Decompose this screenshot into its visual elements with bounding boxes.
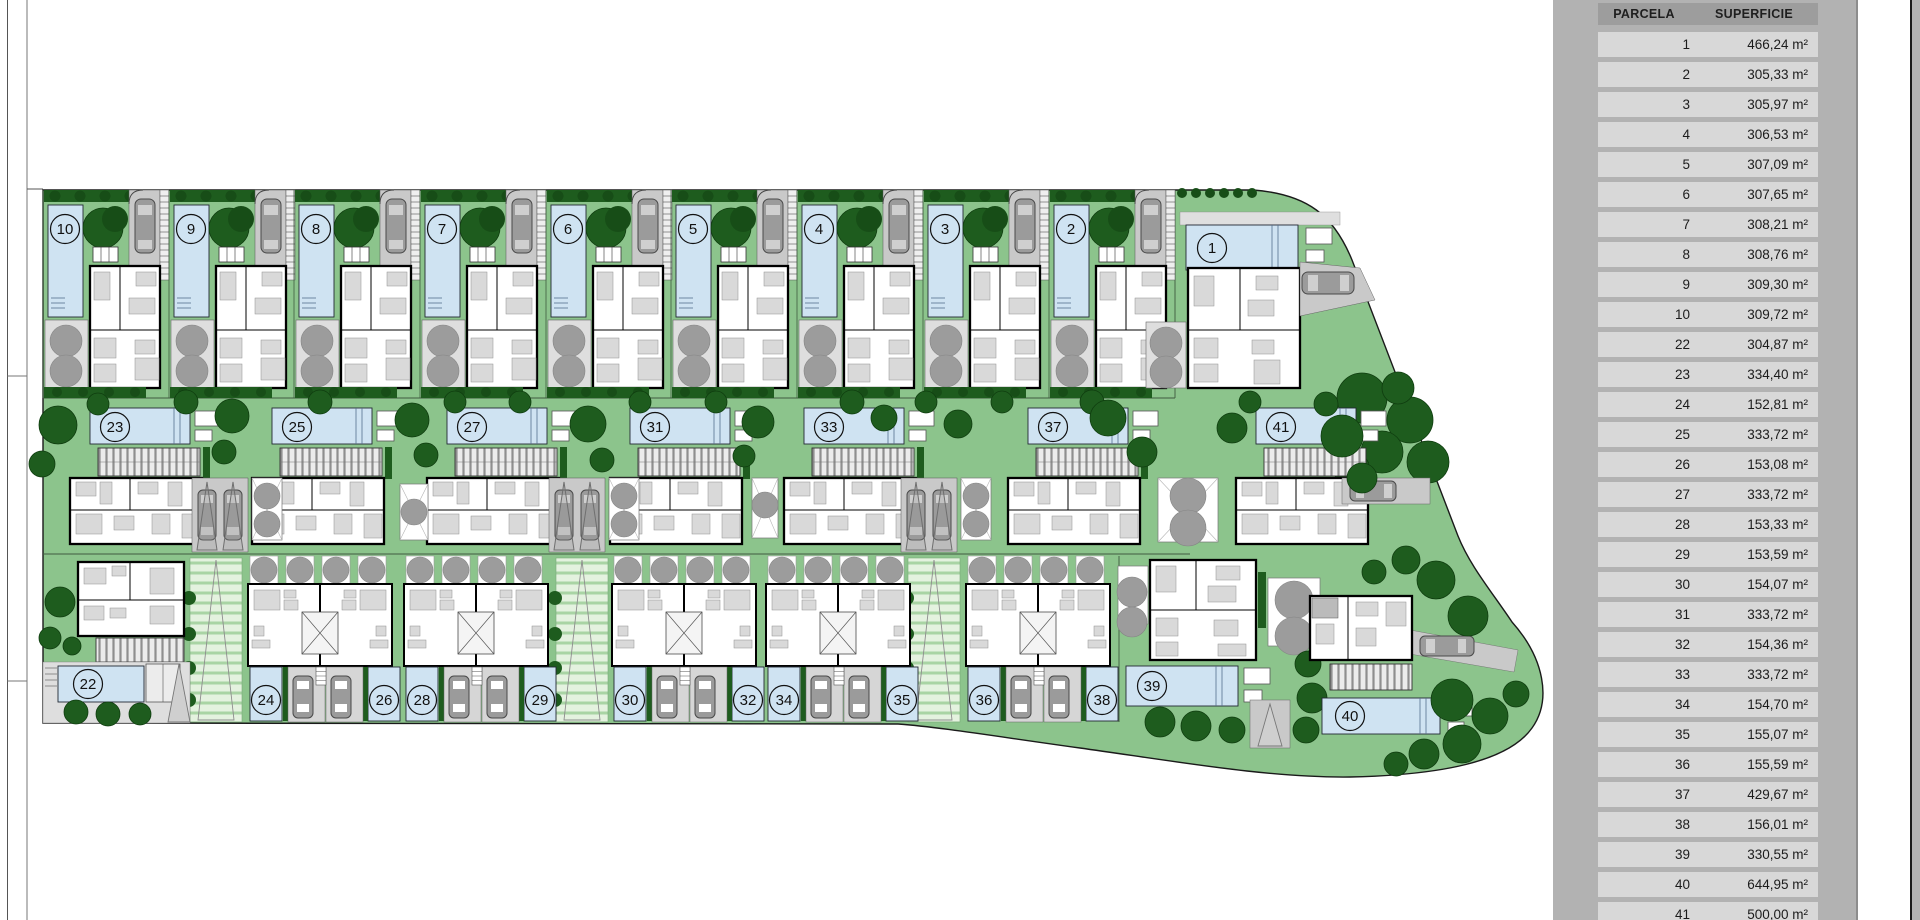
parcela-cell: 25 [1598, 427, 1690, 442]
garden-table [1099, 247, 1124, 262]
parcel-label-text: 34 [776, 692, 793, 709]
furniture [616, 640, 634, 648]
furniture [648, 590, 660, 598]
furniture [254, 590, 280, 610]
furniture [509, 514, 527, 534]
tree-icon [1382, 372, 1414, 404]
car-icon [766, 240, 780, 249]
furniture [152, 514, 170, 534]
furniture [284, 590, 296, 598]
furniture [1088, 640, 1106, 648]
hedge [678, 191, 689, 202]
car-icon [1015, 704, 1027, 712]
furniture [110, 608, 126, 618]
hedge [130, 387, 140, 397]
furniture [889, 340, 909, 354]
parcel-label-text: 41 [1273, 419, 1290, 436]
garden-table [1306, 250, 1324, 262]
car-icon [1053, 704, 1065, 712]
parcel-label-text: 37 [1045, 419, 1062, 436]
furniture [1348, 514, 1366, 538]
grey-tree-icon [1077, 557, 1103, 583]
furniture [970, 640, 988, 648]
furniture [1060, 600, 1074, 610]
furniture [1120, 514, 1138, 538]
hedge [1106, 191, 1117, 202]
tree-icon [479, 206, 505, 232]
grey-tree-icon [301, 325, 333, 357]
grey-tree-icon [877, 557, 903, 583]
furniture [722, 514, 740, 538]
tree-icon [1431, 679, 1473, 721]
furniture [84, 606, 104, 620]
parcel-4: 4 [797, 190, 923, 398]
tree-icon [1409, 739, 1439, 769]
car-icon [1018, 240, 1032, 249]
tree-icon [1181, 711, 1211, 741]
pool [630, 408, 730, 444]
garden-table [470, 247, 495, 262]
tree-icon [96, 702, 120, 726]
furniture [408, 640, 426, 648]
car-icon [1458, 639, 1466, 653]
furniture [262, 272, 282, 286]
hedge [176, 191, 187, 202]
table-row: 10309,72 m² [1598, 302, 1818, 327]
car-icon [853, 681, 865, 689]
furniture [350, 482, 364, 506]
table-row: 41500,00 m² [1598, 902, 1818, 920]
furniture [1242, 514, 1268, 534]
grey-tree-icon [804, 355, 836, 387]
hedge [481, 387, 491, 397]
tree-icon [353, 206, 379, 232]
parcel-label-text: 39 [1144, 678, 1161, 695]
hedge [1001, 667, 1006, 721]
furniture [150, 568, 174, 594]
tree-icon [733, 445, 755, 467]
superficie-cell: 305,33 m² [1690, 67, 1818, 82]
patio [1158, 478, 1218, 546]
tree-icon [871, 405, 897, 431]
furniture [114, 516, 134, 530]
parcel-36-38: 3638 [966, 556, 1118, 722]
parcel-5: 5 [671, 190, 797, 398]
hedge [203, 447, 210, 479]
parcel-34-35: 3435 [766, 556, 918, 722]
parcela-cell: 34 [1598, 697, 1690, 712]
furniture [1100, 364, 1122, 382]
superficie-cell: 333,72 m² [1690, 607, 1818, 622]
grey-tree-icon [1150, 327, 1182, 359]
pool [1322, 698, 1440, 734]
table-row: 37429,67 m² [1598, 782, 1818, 807]
grey-tree-icon [1170, 510, 1206, 546]
tree-icon [87, 393, 109, 415]
tree-icon [45, 587, 75, 617]
superficie-cell: 154,07 m² [1690, 577, 1818, 592]
furniture [734, 640, 752, 648]
parcel-label-text: 24 [258, 692, 275, 709]
furniture [364, 514, 382, 538]
grey-tree-icon [359, 557, 385, 583]
table-row: 31333,72 m² [1598, 602, 1818, 627]
parcel-label-text: 10 [57, 221, 74, 238]
furniture [1208, 586, 1236, 602]
superficie-cell: 309,72 m² [1690, 307, 1818, 322]
hedge [429, 387, 439, 397]
tree-icon [605, 206, 631, 232]
furniture [828, 516, 848, 530]
tree-icon [395, 403, 429, 437]
superficie-cell: 334,40 m² [1690, 367, 1818, 382]
furniture [129, 298, 155, 314]
furniture [894, 626, 904, 636]
hedge [201, 191, 212, 202]
furniture [1318, 514, 1336, 534]
furniture [974, 364, 996, 382]
furniture [1052, 516, 1072, 530]
furniture [380, 298, 406, 314]
parcela-cell: 3 [1598, 97, 1690, 112]
hedge [381, 387, 391, 397]
table-row: 22304,87 m² [1598, 332, 1818, 357]
stairs [1166, 190, 1175, 280]
parcela-cell: 10 [1598, 307, 1690, 322]
table-header: PARCELA SUPERFICIE [1598, 3, 1818, 25]
garden-table [1361, 430, 1378, 441]
hedge [230, 387, 240, 397]
garden-table [596, 247, 621, 262]
furniture [1078, 590, 1104, 610]
table-row: 35155,07 m² [1598, 722, 1818, 747]
table-row: 38156,01 m² [1598, 812, 1818, 837]
furniture [972, 590, 998, 610]
furniture [654, 516, 674, 530]
grey-tree-icon [1275, 581, 1313, 619]
furniture [1062, 590, 1074, 598]
furniture [722, 272, 738, 300]
furniture [261, 358, 285, 380]
garden-table [1133, 411, 1158, 426]
car-icon [1426, 639, 1435, 653]
furniture [1386, 602, 1406, 626]
hedge [50, 191, 61, 202]
grey-tree-icon [287, 557, 313, 583]
grey-tree-icon [723, 557, 749, 583]
furniture [255, 298, 281, 314]
parcel-28-29: 2829 [404, 556, 556, 722]
hedge [980, 191, 991, 202]
hedge [603, 191, 614, 202]
furniture [972, 626, 982, 636]
furniture [862, 590, 874, 598]
grey-tree-icon [1150, 356, 1182, 388]
superficie-cell: 333,72 m² [1690, 667, 1818, 682]
car-icon [453, 681, 465, 689]
table-row: 36155,59 m² [1598, 752, 1818, 777]
table-row: 6307,65 m² [1598, 182, 1818, 207]
furniture [526, 640, 544, 648]
furniture [852, 482, 872, 494]
furniture [100, 482, 112, 504]
furniture [1135, 298, 1161, 314]
furniture [1218, 644, 1246, 656]
car-icon [1053, 681, 1065, 689]
furniture [1142, 272, 1162, 286]
hedge [607, 387, 617, 397]
table-row: 23334,40 m² [1598, 362, 1818, 387]
table-row: 28153,33 m² [1598, 512, 1818, 537]
furniture [597, 364, 619, 382]
tree-icon [742, 406, 774, 438]
hedge [452, 191, 463, 202]
parcel-24-26: 2426 [248, 556, 400, 722]
hedge [806, 387, 816, 397]
walkway [556, 558, 608, 722]
tree-icon [1293, 717, 1319, 743]
furniture [471, 338, 493, 358]
furniture [360, 590, 386, 610]
parcel-label-text: 7 [438, 221, 446, 238]
parcel-label-text: 28 [414, 692, 431, 709]
garden-table [344, 247, 369, 262]
superficie-cell: 153,33 m² [1690, 517, 1818, 532]
furniture [370, 640, 388, 648]
parcel-label-text: 27 [464, 419, 481, 436]
grey-tree-icon [1041, 557, 1067, 583]
furniture [1216, 566, 1240, 580]
furniture [1094, 626, 1104, 636]
furniture [150, 606, 174, 624]
furniture [764, 272, 784, 286]
parcel-label-text: 23 [107, 419, 124, 436]
furniture [848, 272, 864, 300]
hedge [385, 447, 392, 479]
car-icon [297, 681, 309, 689]
garden-table [909, 411, 934, 426]
superficie-cell: 466,24 m² [1690, 37, 1818, 52]
garden-table [377, 430, 394, 441]
table-row: 5307,09 m² [1598, 152, 1818, 177]
tree-icon [944, 410, 972, 438]
furniture [516, 590, 542, 610]
parcela-cell: 24 [1598, 397, 1690, 412]
hedge [52, 387, 62, 397]
car-icon [1144, 240, 1158, 249]
furniture [708, 482, 722, 506]
grey-tree-icon [805, 557, 831, 583]
shrub-icon [548, 591, 562, 605]
furniture [136, 272, 156, 286]
superficie-cell: 306,53 m² [1690, 127, 1818, 142]
tree-icon [629, 391, 651, 413]
car-icon [892, 205, 906, 215]
parcel-label-text: 22 [80, 676, 97, 693]
furniture [1356, 628, 1376, 646]
furniture [84, 568, 106, 584]
car-icon [641, 205, 655, 215]
grey-tree-icon [323, 557, 349, 583]
superficie-cell: 644,95 m² [1690, 877, 1818, 892]
furniture [1002, 600, 1016, 610]
furniture [512, 358, 536, 380]
furniture [722, 338, 744, 358]
table-row: 8308,76 m² [1598, 242, 1818, 267]
patio [400, 484, 428, 540]
grey-tree-icon [687, 557, 713, 583]
furniture [757, 298, 783, 314]
table-body: 1466,24 m²2305,33 m²3305,97 m²4306,53 m²… [1598, 32, 1818, 920]
garden-table [909, 430, 926, 441]
tree-icon [39, 627, 61, 649]
parcel-6: 6 [546, 190, 672, 398]
hedge [732, 387, 742, 397]
parcela-cell: 39 [1598, 847, 1690, 862]
furniture [135, 358, 159, 380]
tree-icon [982, 206, 1008, 232]
hedge [680, 387, 690, 397]
grey-tree-icon [769, 557, 795, 583]
hedge [1205, 188, 1215, 198]
hedge [75, 191, 86, 202]
hedge [363, 667, 368, 721]
furniture [802, 590, 814, 598]
furniture [94, 364, 116, 382]
furniture [457, 482, 469, 504]
furniture [866, 514, 884, 534]
shrub-icon [548, 627, 562, 641]
grey-tree-icon [651, 557, 677, 583]
furniture [740, 626, 750, 636]
grey-tree-icon [254, 511, 280, 537]
tree-icon [1384, 752, 1408, 776]
hedge [355, 387, 365, 397]
grey-tree-icon [611, 483, 637, 509]
car-icon [389, 205, 403, 215]
hedge [560, 447, 567, 479]
hedge [881, 667, 886, 721]
hedge [984, 387, 994, 397]
tree-icon [102, 206, 128, 232]
furniture [282, 482, 294, 504]
tree-icon [444, 391, 466, 413]
furniture [410, 590, 436, 610]
furniture [1194, 338, 1218, 358]
grey-tree-icon [401, 499, 427, 525]
parcela-cell: 6 [1598, 187, 1690, 202]
furniture [440, 600, 454, 610]
furniture [639, 272, 659, 286]
tree-icon [174, 390, 198, 414]
parcela-cell: 33 [1598, 667, 1690, 682]
hedge [555, 387, 565, 397]
garden-table [93, 247, 118, 262]
parcela-cell: 26 [1598, 457, 1690, 472]
grey-tree-icon [479, 557, 505, 583]
furniture [772, 590, 798, 610]
hedge [351, 191, 362, 202]
grey-tree-icon [427, 325, 459, 357]
parcel-label-text: 25 [289, 419, 306, 436]
tree-icon [39, 406, 77, 444]
furniture [261, 340, 281, 354]
furniture [1009, 298, 1035, 314]
furniture [94, 338, 116, 358]
car-icon [661, 681, 673, 689]
hedge [78, 387, 88, 397]
hedge [581, 387, 591, 397]
grey-tree-icon [804, 325, 836, 357]
car-icon [1018, 205, 1032, 215]
parcela-cell: 5 [1598, 157, 1690, 172]
grey-tree-icon [50, 325, 82, 357]
furniture [1214, 620, 1238, 636]
furniture [638, 358, 662, 380]
parcela-cell: 40 [1598, 877, 1690, 892]
furniture [1106, 482, 1120, 506]
table-row: 29153,59 m² [1598, 542, 1818, 567]
furniture [320, 482, 340, 494]
grey-tree-icon [930, 325, 962, 357]
furniture [1256, 276, 1278, 290]
stairs [537, 190, 546, 280]
grey-tree-icon [1117, 607, 1147, 637]
pergola [96, 638, 184, 662]
furniture [1100, 338, 1122, 358]
furniture [692, 514, 710, 534]
furniture [790, 514, 816, 534]
tree-icon [1347, 463, 1377, 493]
furniture [386, 340, 406, 354]
grey-tree-icon [1005, 557, 1031, 583]
hedge [1233, 188, 1243, 198]
parcel-30-32: 3032 [612, 556, 764, 722]
table-row: 2305,33 m² [1598, 62, 1818, 87]
grey-tree-icon [930, 355, 962, 387]
car-icon [297, 704, 309, 712]
grey-tree-icon [611, 511, 637, 537]
furniture [495, 482, 515, 494]
tree-icon [915, 391, 937, 413]
superficie-cell: 155,59 m² [1690, 757, 1818, 772]
furniture [220, 338, 242, 358]
parcel-label-text: 8 [312, 221, 320, 238]
car-icon [1015, 681, 1027, 689]
parcela-cell: 8 [1598, 247, 1690, 262]
furniture [284, 600, 298, 610]
parcel-label-text: 30 [622, 692, 639, 709]
car-icon [641, 240, 655, 249]
furniture [386, 358, 410, 380]
tree-icon [1108, 206, 1134, 232]
grey-tree-icon [1117, 577, 1147, 607]
superficie-cell: 500,00 m² [1690, 907, 1818, 920]
car-icon [1308, 275, 1318, 291]
hedge [326, 191, 337, 202]
hedge [1081, 667, 1086, 721]
tree-icon [63, 637, 81, 655]
furniture [890, 272, 910, 286]
superficie-cell: 155,07 m² [1690, 727, 1818, 742]
furniture [763, 340, 783, 354]
walkway [182, 558, 242, 722]
car-icon [389, 240, 403, 249]
furniture [974, 272, 990, 300]
furniture [1252, 340, 1274, 354]
furniture [471, 516, 491, 530]
superficie-cell: 429,67 m² [1690, 787, 1818, 802]
